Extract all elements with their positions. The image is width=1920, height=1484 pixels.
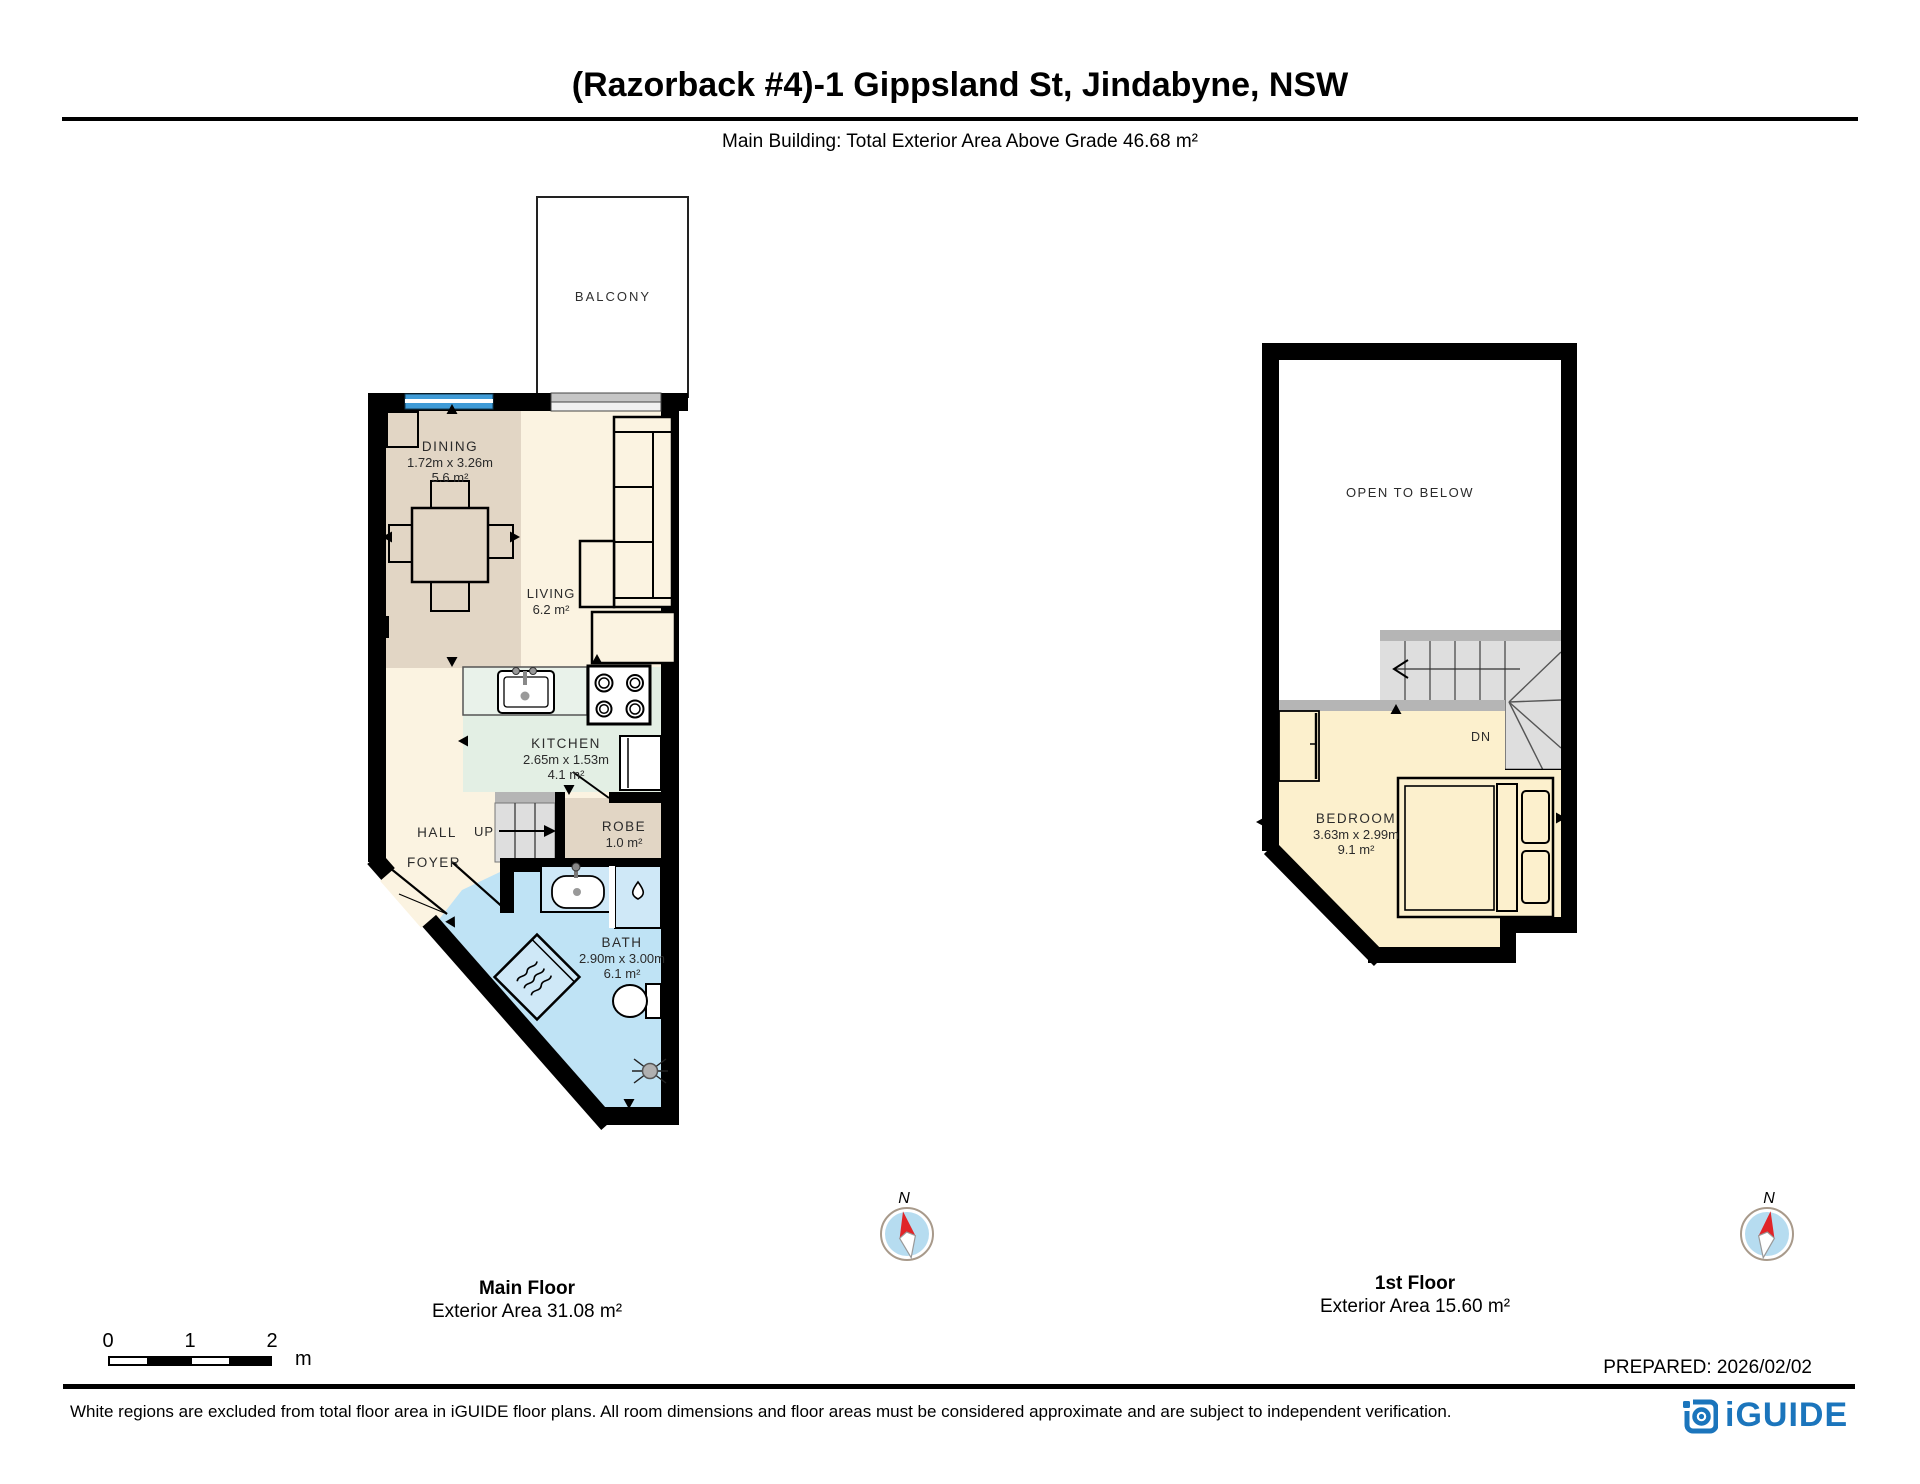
- kitchen-area: 4.1 m²: [548, 767, 586, 782]
- living-area: 6.2 m²: [533, 602, 571, 617]
- kitchen-fridge: [620, 736, 661, 790]
- up-label: UP: [474, 824, 494, 839]
- main-floor-name: Main Floor: [377, 1277, 677, 1300]
- balcony-room: BALCONY: [537, 197, 688, 397]
- living-label: LIVING: [527, 586, 576, 601]
- scale-tick-2: 2: [266, 1330, 277, 1353]
- dn-label: DN: [1471, 730, 1491, 744]
- pillow: [1522, 791, 1549, 843]
- dining-window: [405, 394, 493, 409]
- bath-dims: 2.90m x 3.00m: [579, 951, 665, 966]
- open-to-below-label: OPEN TO BELOW: [1346, 485, 1474, 500]
- balcony-sliding-door: [551, 393, 661, 411]
- faucet-knob-icon: [513, 668, 520, 675]
- north-label: N: [1763, 1190, 1775, 1207]
- sink-drain-icon: [521, 692, 530, 701]
- bedroom-area: 9.1 m²: [1338, 842, 1376, 857]
- kitchen-sink: [498, 668, 554, 714]
- balcony-label: BALCONY: [575, 289, 651, 304]
- compass-main-floor: N: [862, 1186, 952, 1286]
- main-floor-plan: BALCONY: [350, 180, 700, 1140]
- bedroom-closet: [1279, 711, 1319, 781]
- iguide-logo-icon: [1680, 1398, 1718, 1434]
- dining-dims: 1.72m x 3.26m: [407, 455, 493, 470]
- kitchen-stove: [588, 666, 650, 724]
- dining-cabinet: [387, 412, 418, 447]
- first-floor-caption: 1st Floor Exterior Area 15.60 m²: [1265, 1272, 1565, 1318]
- first-floor-area: Exterior Area 15.60 m²: [1265, 1295, 1565, 1318]
- stairs-up: [495, 792, 556, 862]
- dining-chair-bottom: [431, 581, 469, 611]
- bedroom-label: BEDROOM: [1316, 811, 1396, 826]
- toilet: [613, 984, 661, 1018]
- ottoman: [592, 612, 675, 663]
- floorplan-page: (Razorback #4)-1 Gippsland St, Jindabyne…: [0, 0, 1920, 1484]
- stairs-cap: [1380, 630, 1561, 641]
- bath-vanity: [541, 863, 613, 912]
- faucet-knob-icon: [530, 668, 537, 675]
- scale-segment: [149, 1356, 190, 1366]
- dining-chair-top: [431, 481, 469, 509]
- pillow: [1522, 851, 1549, 903]
- page-title: (Razorback #4)-1 Gippsland St, Jindabyne…: [0, 66, 1920, 105]
- scale-bar-segments: [108, 1356, 272, 1366]
- header-divider: [62, 117, 1858, 121]
- dining-label: DINING: [422, 439, 478, 454]
- footer-divider: [63, 1384, 1855, 1389]
- dining-chair-right: [486, 525, 513, 558]
- iguide-logo-text: iGUIDE: [1725, 1396, 1848, 1435]
- dining-table: [412, 508, 488, 582]
- page-subtitle: Main Building: Total Exterior Area Above…: [0, 131, 1920, 153]
- bedroom-dims: 3.63m x 2.99m: [1313, 827, 1399, 842]
- scale-unit: m: [295, 1348, 312, 1371]
- bath-label: BATH: [601, 935, 642, 950]
- hall-label: HALL: [417, 825, 457, 840]
- robe-area: 1.0 m²: [606, 835, 644, 850]
- stairs-cap: [495, 792, 555, 803]
- scale-tick-1: 1: [184, 1330, 195, 1353]
- shower: [609, 866, 661, 928]
- scale-segment: [190, 1356, 231, 1366]
- first-floor-name: 1st Floor: [1265, 1272, 1565, 1295]
- scale-bar: 0 1 2 m: [95, 1330, 355, 1378]
- scale-tick-0: 0: [102, 1330, 113, 1353]
- first-floor-plan: OPEN TO BELOW DN BEDROOM 3.63m x 2.99m 9…: [1240, 270, 1590, 990]
- arrow-icon: [1256, 817, 1266, 828]
- bed: [1398, 778, 1553, 917]
- faucet-icon: [572, 863, 580, 871]
- drain-icon: [573, 888, 581, 896]
- disclaimer-text: White regions are excluded from total fl…: [70, 1402, 1530, 1422]
- prepared-date: PREPARED: 2026/02/02: [1512, 1357, 1812, 1379]
- couch-chaise: [580, 541, 614, 607]
- main-floor-caption: Main Floor Exterior Area 31.08 m²: [377, 1277, 677, 1323]
- bath-area: 6.1 m²: [604, 966, 642, 981]
- main-floor-area: Exterior Area 31.08 m²: [377, 1300, 677, 1323]
- scale-segment: [108, 1356, 149, 1366]
- compass-first-floor: N: [1722, 1186, 1812, 1286]
- kitchen-dims: 2.65m x 1.53m: [523, 752, 609, 767]
- scale-segment: [231, 1356, 272, 1366]
- kitchen-label: KITCHEN: [531, 736, 601, 751]
- dining-chair-left: [389, 525, 413, 562]
- robe-label: ROBE: [602, 819, 646, 834]
- dining-area: 5.6 m²: [432, 470, 470, 485]
- iguide-logo: iGUIDE: [1680, 1396, 1848, 1435]
- foyer-label: FOYER: [407, 855, 461, 870]
- north-label: N: [898, 1190, 910, 1207]
- landing-band: [1278, 700, 1505, 711]
- headboard: [1497, 784, 1517, 911]
